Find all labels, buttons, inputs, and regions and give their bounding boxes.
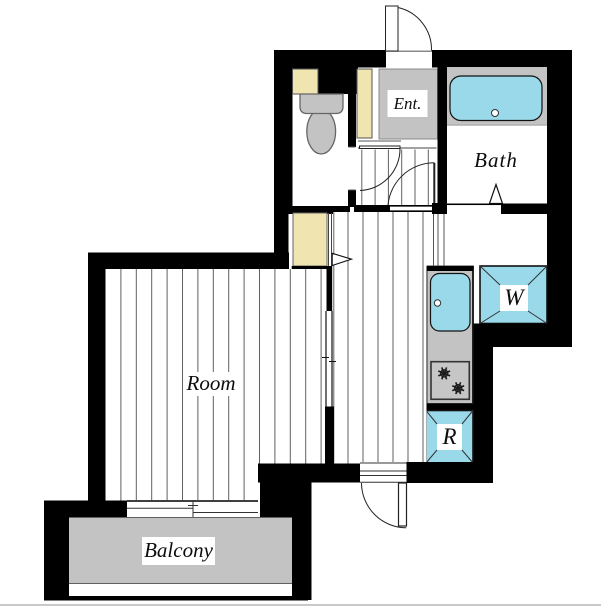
svg-text:Ent.: Ent. [393, 94, 422, 113]
svg-text:R: R [441, 424, 456, 449]
svg-text:Balcony: Balcony [144, 538, 213, 562]
svg-text:W: W [504, 285, 525, 310]
svg-text:Bath: Bath [474, 148, 518, 172]
svg-text:Room: Room [186, 371, 236, 395]
